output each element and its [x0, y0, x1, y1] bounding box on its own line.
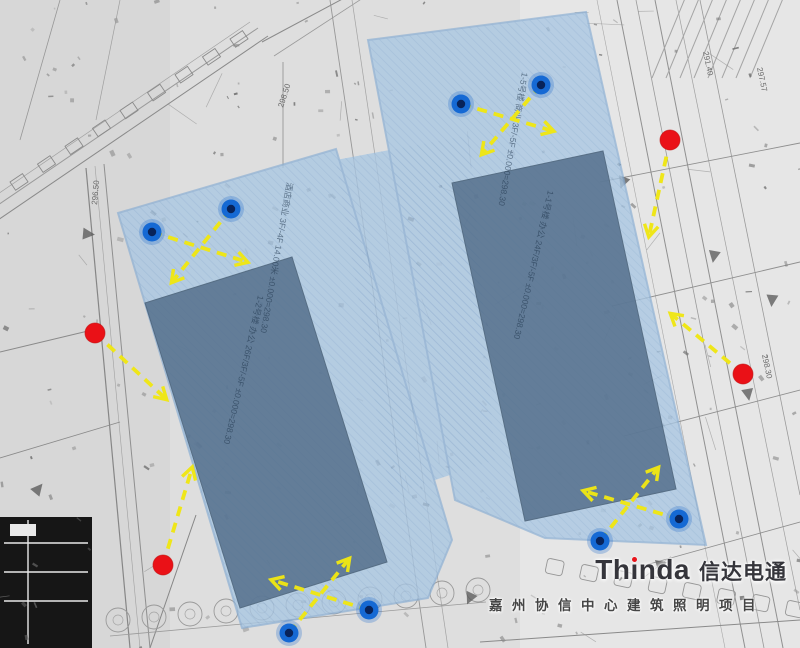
projector-marker-blue — [666, 506, 692, 532]
cad-mark — [214, 6, 216, 8]
site-plan-image: 297.57291.40298.30298.50296.50 1-2号楼 办公 … — [0, 0, 800, 648]
cad-mark — [294, 102, 296, 106]
cad-mark — [70, 98, 74, 102]
brand-logo: Thnda 信达电通 嘉州协信中心建筑照明项目 — [489, 554, 787, 614]
cad-mark — [64, 90, 67, 94]
cad-mark — [337, 134, 340, 137]
cad-mark — [48, 96, 53, 98]
projector-marker-blue — [448, 91, 474, 117]
projector-marker-blue — [139, 219, 165, 245]
projector-marker-blue — [218, 196, 244, 222]
project-title: 嘉州协信中心建筑照明项目 — [489, 594, 765, 614]
cad-mark — [169, 607, 175, 611]
cad-mark — [325, 90, 330, 93]
projector-marker-red — [153, 555, 173, 575]
projector-marker-blue — [276, 620, 302, 646]
brand-wordmark-cn: 信达电通 — [699, 556, 787, 586]
projector-marker-blue — [587, 528, 613, 554]
cad-mark — [220, 153, 223, 156]
cad-mark — [716, 17, 721, 20]
projector-marker-blue — [356, 597, 382, 623]
cad-mark — [710, 408, 712, 410]
cad-mark — [675, 50, 678, 53]
cad-mark — [711, 300, 714, 303]
existing-building-block — [0, 517, 92, 648]
cad-mark — [233, 44, 239, 46]
brand-wordmark-en: Thnda — [595, 554, 690, 586]
existing-building-cell — [10, 524, 36, 536]
site-plan-canvas: 297.57291.40298.30298.50296.50 1-2号楼 办公 … — [0, 0, 800, 648]
cad-mark — [318, 109, 323, 112]
projector-marker-red — [660, 130, 680, 150]
cad-mark — [88, 134, 91, 136]
cad-mark — [7, 233, 8, 235]
projector-marker-red — [733, 364, 753, 384]
cad-mark — [29, 308, 35, 310]
projector-marker-red — [85, 323, 105, 343]
projector-marker-blue — [528, 72, 554, 98]
logo-red-i-dot — [630, 554, 638, 586]
cad-mark — [238, 82, 240, 84]
